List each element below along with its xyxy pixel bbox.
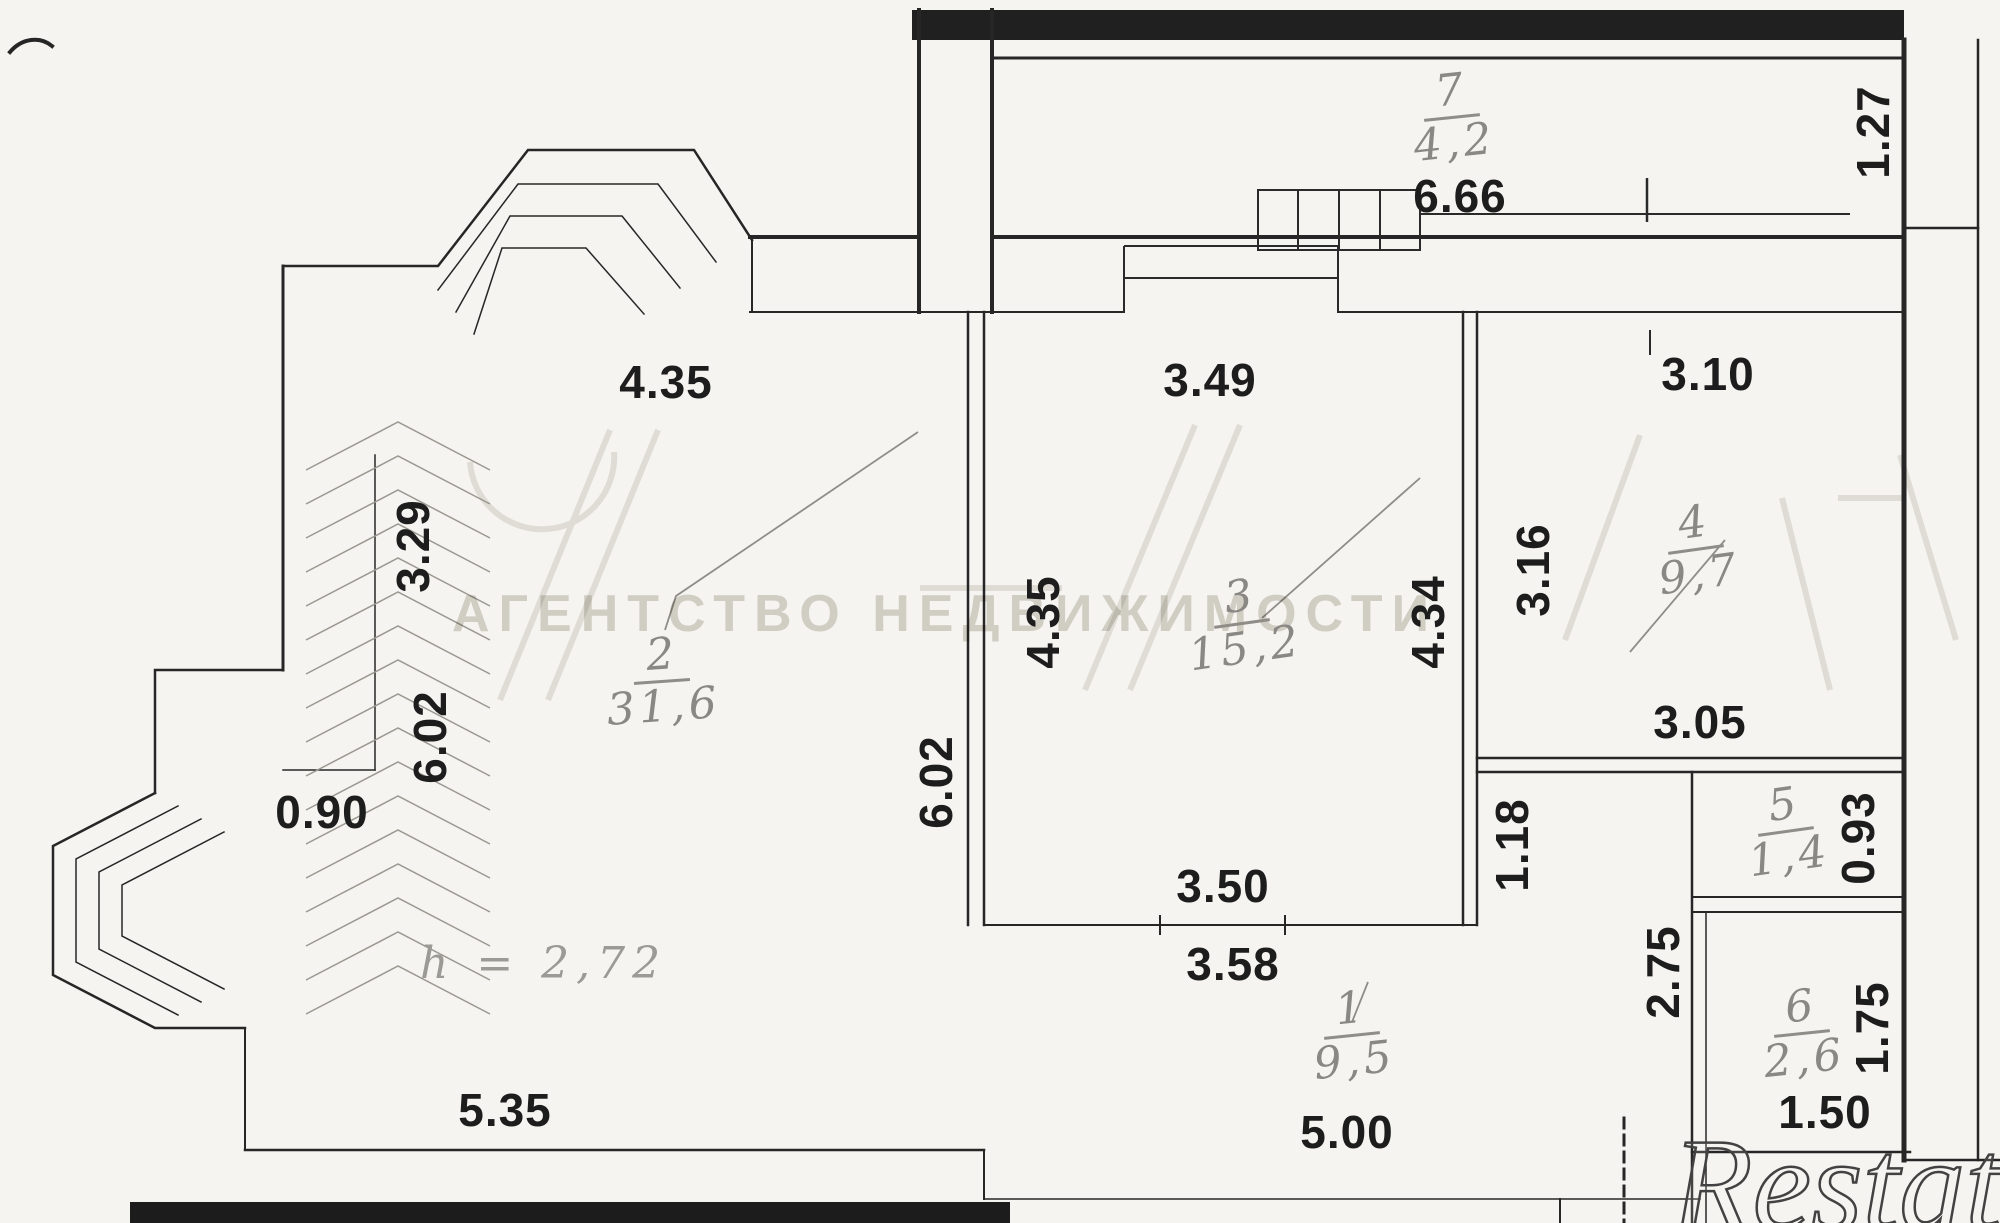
brand-watermark: Restate — [1672, 1108, 2000, 1223]
dim-1-18: 1.18 — [1488, 770, 1536, 920]
dim-4-35-top: 4.35 — [591, 358, 741, 406]
room-area: 2,6 — [1761, 1031, 1848, 1087]
room-label-2: 2 31,6 — [599, 628, 726, 735]
room-area: 1,4 — [1746, 827, 1834, 886]
leader-lines — [665, 432, 1725, 1022]
dim-3-29: 3.29 — [389, 471, 437, 621]
room-number: 6 — [1769, 981, 1830, 1038]
dim-6-66: 6.66 — [1385, 172, 1535, 220]
dim-5-35: 5.35 — [430, 1086, 580, 1134]
dim-4-35-vert: 4.35 — [1019, 547, 1067, 697]
room-label-1: 1 9,5 — [1287, 980, 1417, 1091]
dim-3-05: 3.05 — [1625, 698, 1775, 746]
dim-3-50: 3.50 — [1148, 862, 1298, 910]
floorplan-page: 6.66 4.35 3.49 3.10 0.90 3.05 3.50 3.58 … — [0, 0, 2000, 1223]
ceiling-height-note: h = 2,72 — [420, 938, 667, 989]
dim-3-49: 3.49 — [1135, 356, 1285, 404]
dim-6-02-left: 6.02 — [406, 662, 454, 812]
room-label-4: 4 9,7 — [1630, 492, 1763, 607]
dim-3-58: 3.58 — [1158, 940, 1308, 988]
dim-4-34: 4.34 — [1404, 547, 1452, 697]
dim-5-00: 5.00 — [1272, 1108, 1422, 1156]
room-number: 7 — [1419, 65, 1480, 122]
room-label-3: 3 15,2 — [1176, 566, 1309, 681]
room-number: 1 — [1319, 983, 1380, 1040]
room-area: 9,7 — [1656, 545, 1744, 604]
dim-0-90: 0.90 — [247, 788, 397, 836]
room-area: 4,2 — [1411, 115, 1498, 171]
dim-3-16: 3.16 — [1509, 495, 1557, 645]
dim-2-75: 2.75 — [1639, 897, 1687, 1047]
dim-3-10: 3.10 — [1633, 350, 1783, 398]
room-area: 9,5 — [1311, 1033, 1398, 1089]
room-area: 31,6 — [605, 679, 722, 735]
dim-1-27: 1.27 — [1849, 57, 1897, 207]
room-label-7: 7 4,2 — [1387, 62, 1517, 173]
dim-6-02-center: 6.02 — [912, 707, 960, 857]
room-number: 2 — [631, 630, 690, 685]
room-label-6: 6 2,6 — [1737, 978, 1867, 1089]
room-label-5: 5 1,4 — [1720, 774, 1853, 889]
